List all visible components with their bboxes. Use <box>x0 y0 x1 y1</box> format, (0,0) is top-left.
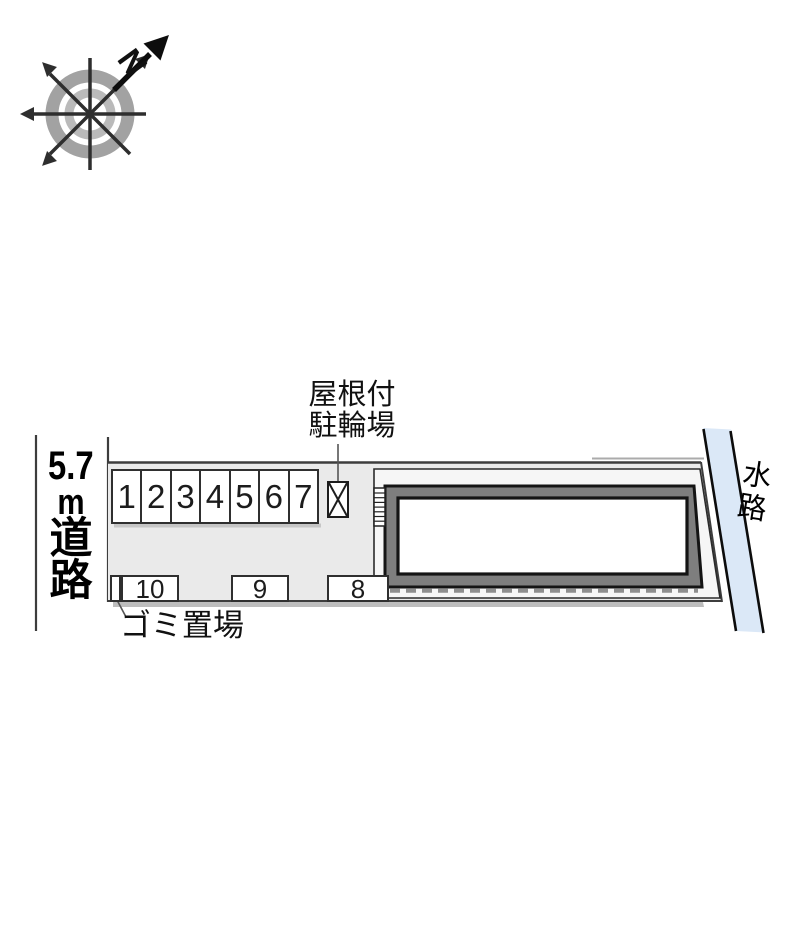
bicycle-parking-label-line2: 駐輪場 <box>290 411 414 442</box>
parking-stall-3: 3 <box>172 471 201 522</box>
road-width-label: 5.7 m 道 路 <box>36 446 106 602</box>
site-bottom-shadow <box>113 602 704 607</box>
garbage-area-box <box>110 575 121 602</box>
road-width-value: 5.7 <box>48 446 94 486</box>
parking-stall-9: 9 <box>231 575 289 602</box>
parking-stall-6: 6 <box>260 471 289 522</box>
bicycle-parking-label-line1: 屋根付 <box>290 380 414 411</box>
road-kanji-1: 道 <box>50 518 93 560</box>
parking-stall-7: 7 <box>290 471 317 522</box>
compass-rose: N <box>20 27 177 171</box>
site-plan: N 1 2 3 4 5 6 7 10 9 8 屋根付 駐輪場 5.7 m 道 路… <box>0 0 800 940</box>
bicycle-parking-label: 屋根付 駐輪場 <box>290 380 414 442</box>
road-kanji-2: 路 <box>50 560 93 602</box>
stall-row-shadow <box>114 524 321 528</box>
parking-row-top: 1 2 3 4 5 6 7 <box>111 469 319 524</box>
x-mark-icon <box>329 483 347 516</box>
parking-stall-10: 10 <box>121 575 179 602</box>
building-inner <box>398 498 687 574</box>
garbage-area-label: ゴミ置場 <box>120 610 244 641</box>
parking-stall-8: 8 <box>327 575 389 602</box>
parking-stall-5: 5 <box>231 471 260 522</box>
road-width-unit: m <box>57 486 84 518</box>
parking-stall-1: 1 <box>113 471 142 522</box>
bicycle-parking-stall <box>327 481 349 518</box>
stairs-icon <box>374 488 385 526</box>
parking-stall-4: 4 <box>201 471 230 522</box>
parking-stall-2: 2 <box>142 471 171 522</box>
